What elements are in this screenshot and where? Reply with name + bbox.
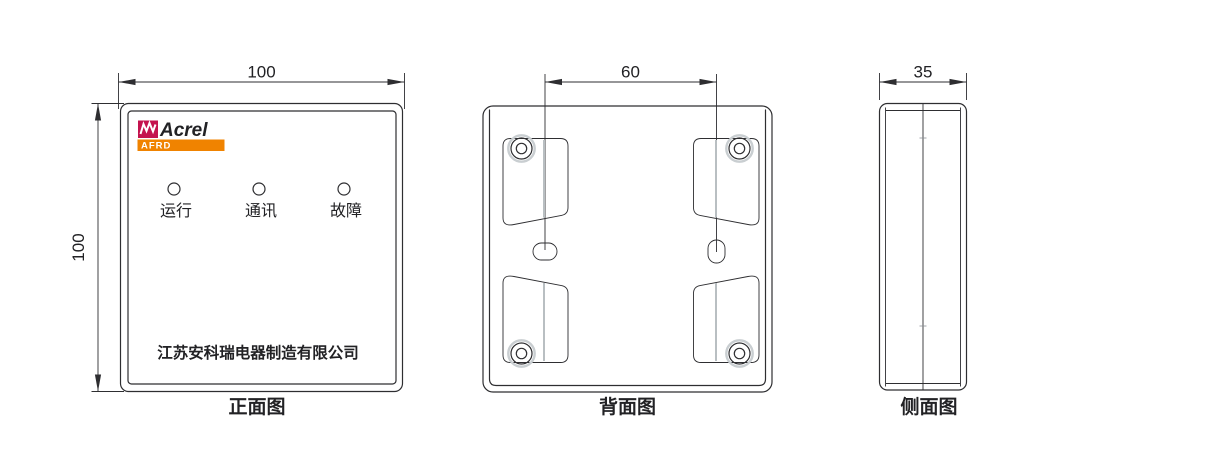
front-view-caption: 正面图 <box>228 396 285 418</box>
dimension-value: 60 <box>621 63 640 82</box>
led-indicators: 运行 通讯 故障 <box>160 183 362 220</box>
led-fault-label: 故障 <box>330 202 362 220</box>
arrowhead-left <box>880 79 897 85</box>
screw-halo <box>508 135 534 161</box>
screw-inner-ring <box>734 143 744 153</box>
arrowhead-up <box>95 104 101 121</box>
screw-top-left <box>508 135 534 161</box>
arrowhead-right <box>388 79 405 85</box>
dimension-value: 35 <box>914 63 933 82</box>
led-run <box>168 183 180 195</box>
led-comm <box>253 183 265 195</box>
side-view-caption: 侧面图 <box>900 396 957 418</box>
dimension-value: 100 <box>69 233 88 261</box>
screw-halo <box>726 135 752 161</box>
screw-outer-ring <box>729 138 750 159</box>
dimension-value: 100 <box>247 63 275 82</box>
mounting-panels <box>503 139 759 363</box>
screw-top-right <box>726 135 752 161</box>
front-panel-outline <box>128 111 396 384</box>
back-hole-spacing-dimension: 60 <box>545 63 717 253</box>
arrowhead-left <box>119 79 136 85</box>
screw-inner-ring <box>516 348 526 358</box>
back-view-caption: 背面图 <box>599 395 656 418</box>
screw-outer-ring <box>729 343 750 364</box>
acrel-logo: Acrel AFRD <box>138 120 225 152</box>
arrowhead-right <box>700 79 717 85</box>
screw-inner-ring <box>516 143 526 153</box>
front-height-dimension: 100 <box>69 104 124 392</box>
company-name: 江苏安科瑞电器制造有限公司 <box>157 343 359 362</box>
screw-outer-ring <box>511 343 532 364</box>
technical-drawing-page: 100 100 Acrel AFRD 运行 通讯 <box>0 0 1212 462</box>
front-view: 100 100 Acrel AFRD 运行 通讯 <box>69 63 405 419</box>
brand-name: Acrel <box>159 120 208 141</box>
arrowhead-right <box>950 79 967 85</box>
screw-inner-ring <box>734 348 744 358</box>
panel-bottom-left <box>503 276 568 362</box>
front-width-dimension: 100 <box>119 63 405 110</box>
led-run-label: 运行 <box>160 202 192 220</box>
arrowhead-down <box>95 375 101 392</box>
drawing-svg: 100 100 Acrel AFRD 运行 通讯 <box>0 0 1212 462</box>
led-comm-label: 通讯 <box>245 202 277 220</box>
side-view: 35 侧面图 <box>880 63 967 419</box>
arrowhead-left <box>545 79 562 85</box>
back-view: 60 <box>483 63 772 419</box>
screw-outer-ring <box>511 138 532 159</box>
side-depth-dimension: 35 <box>880 63 967 101</box>
model-name: AFRD <box>141 141 171 152</box>
led-fault <box>338 183 350 195</box>
